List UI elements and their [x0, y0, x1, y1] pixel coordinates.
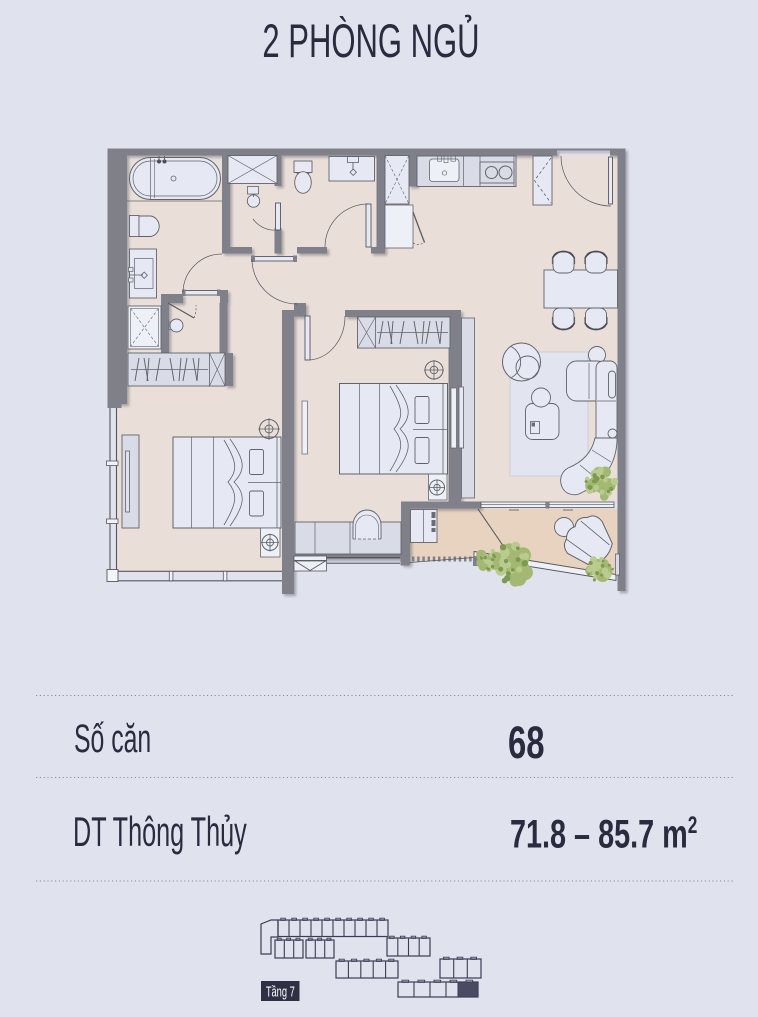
svg-text:Tầng 7: Tầng 7 [266, 983, 295, 1000]
